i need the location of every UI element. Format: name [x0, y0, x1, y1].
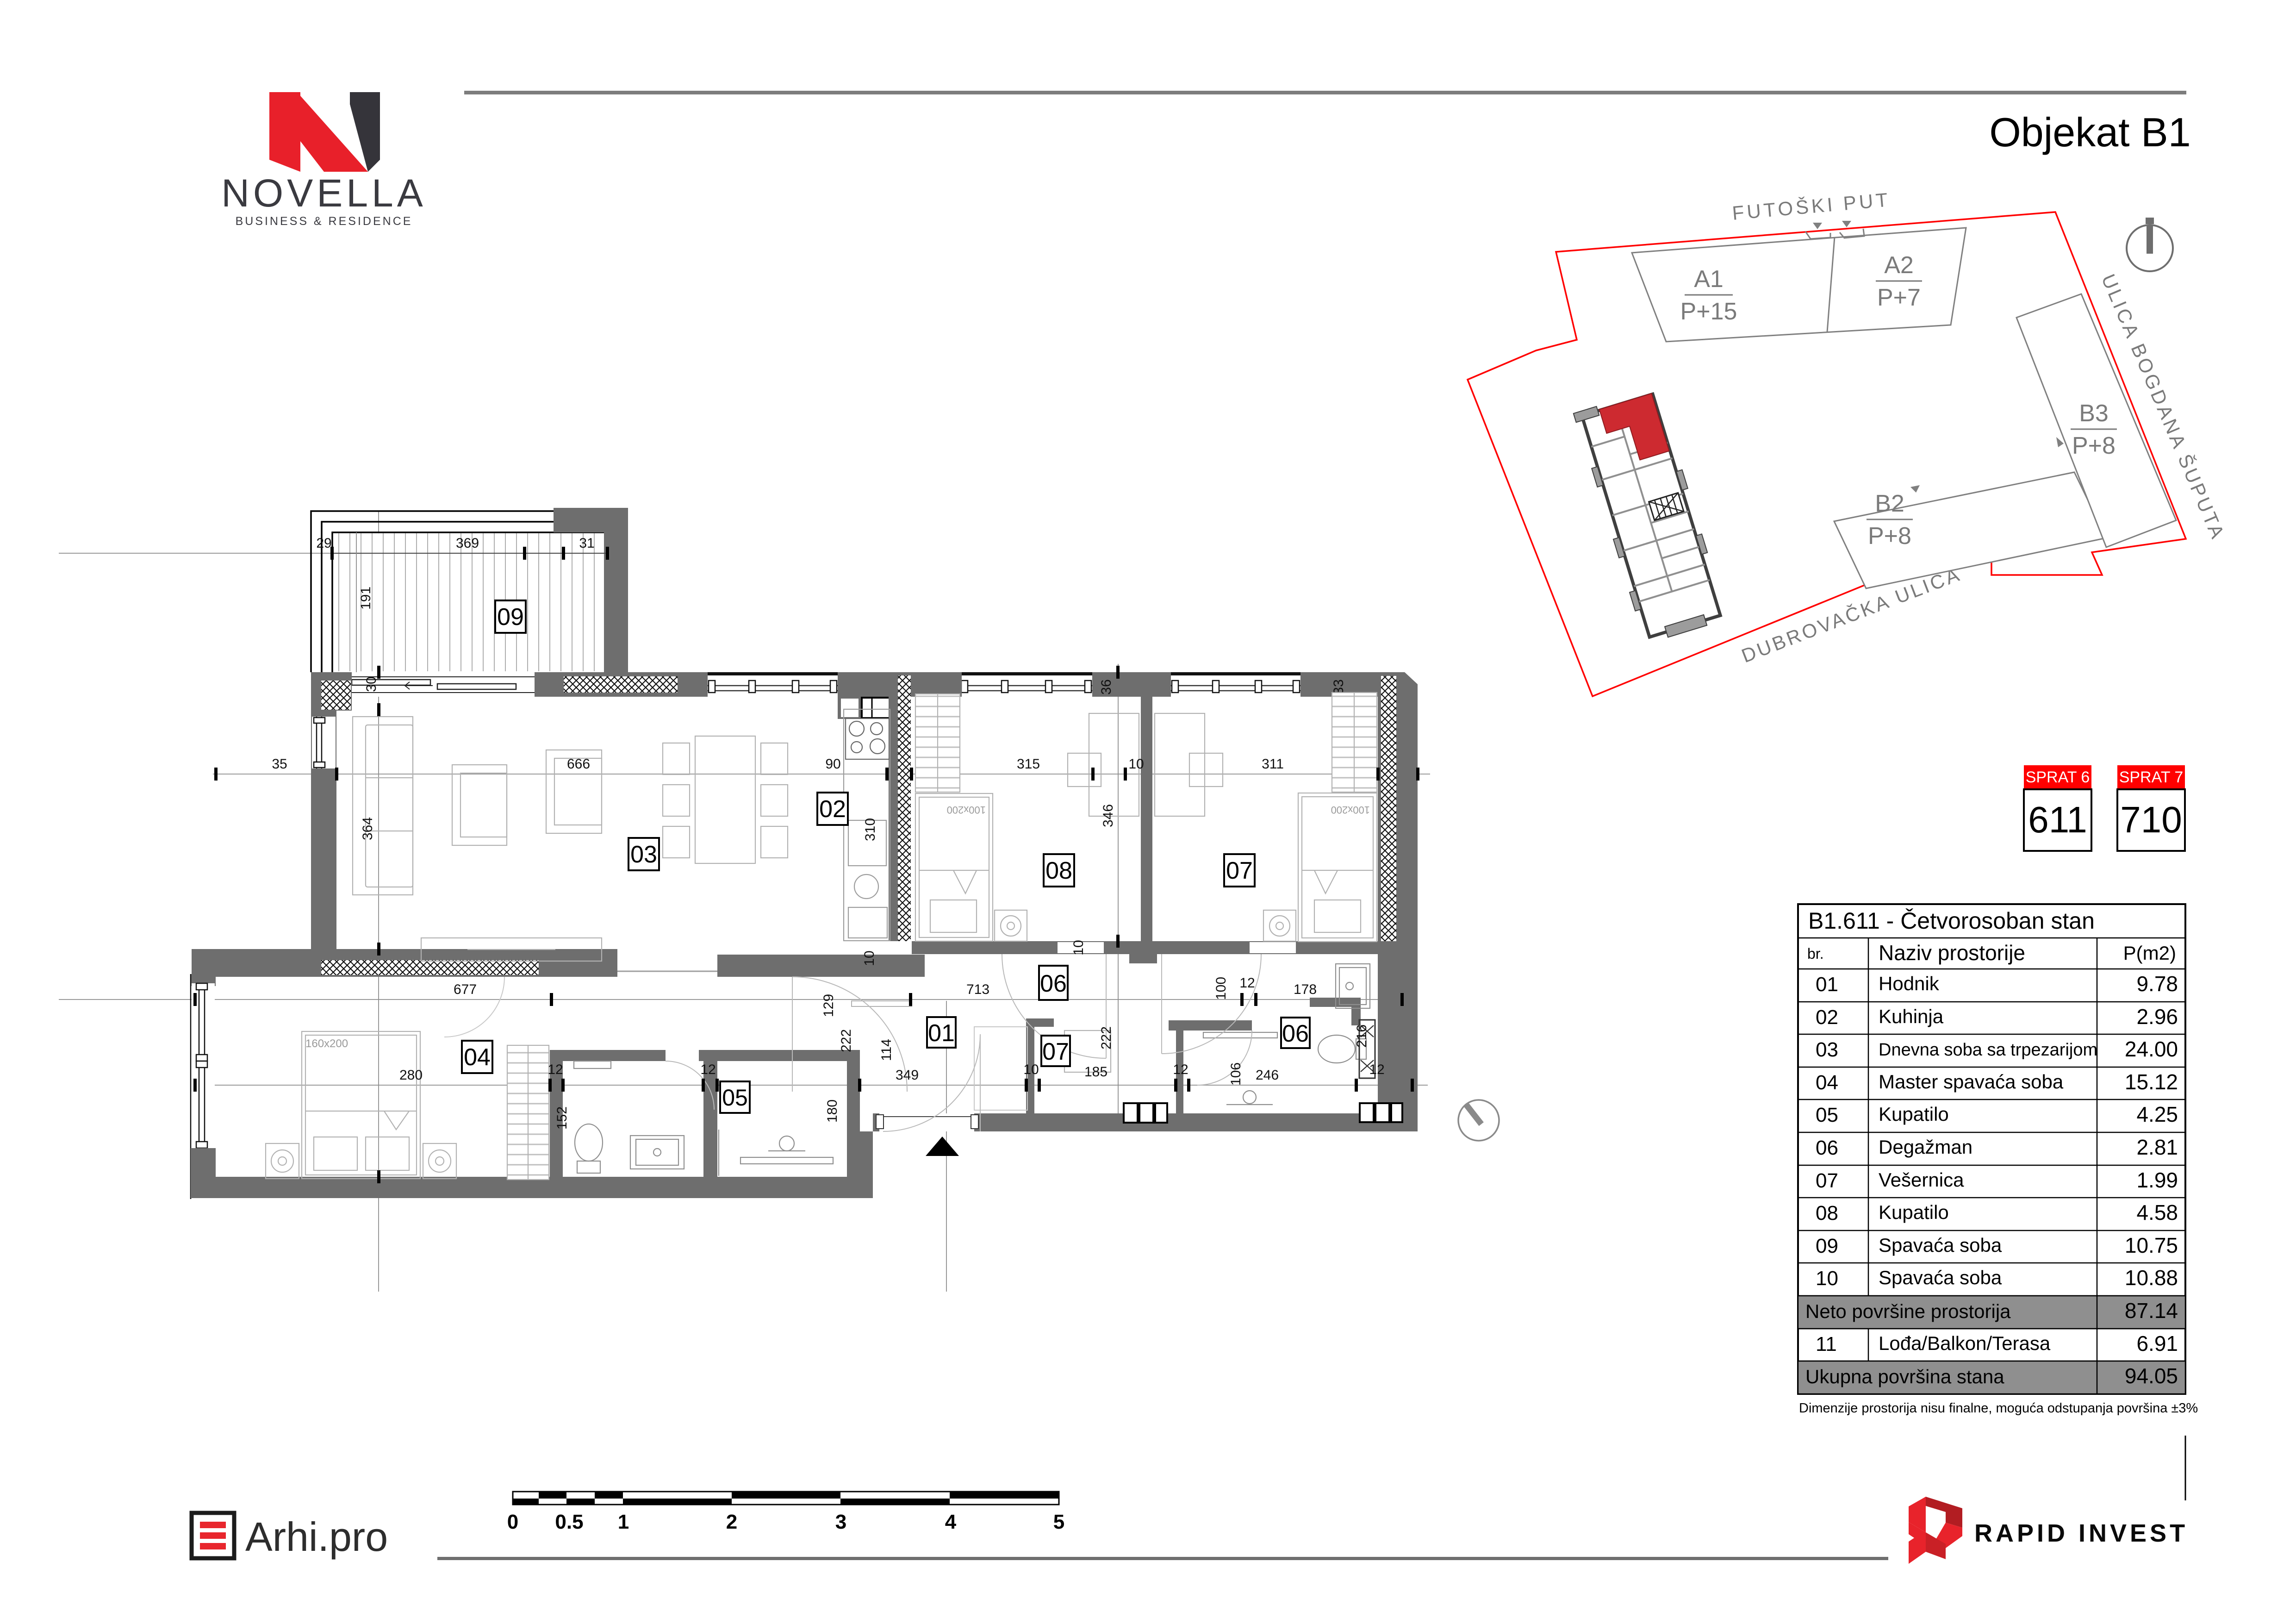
- svg-text:35: 35: [272, 756, 287, 772]
- svg-text:B2: B2: [1875, 490, 1904, 517]
- svg-text:180: 180: [825, 1099, 840, 1123]
- svg-text:677: 677: [454, 982, 477, 997]
- svg-text:185: 185: [1084, 1064, 1108, 1080]
- svg-text:12: 12: [700, 1062, 716, 1077]
- svg-text:191: 191: [358, 587, 373, 610]
- svg-text:310: 310: [863, 818, 878, 841]
- svg-text:Kuhinja: Kuhinja: [1879, 1006, 1944, 1027]
- svg-text:713: 713: [966, 982, 989, 997]
- svg-text:1: 1: [618, 1511, 629, 1533]
- svg-text:129: 129: [821, 994, 836, 1017]
- svg-text:09: 09: [497, 604, 524, 631]
- svg-text:6.91: 6.91: [2136, 1331, 2178, 1355]
- svg-text:100x200: 100x200: [1331, 804, 1370, 816]
- svg-text:NOVELLA: NOVELLA: [221, 171, 427, 215]
- svg-text:02: 02: [1816, 1006, 1838, 1029]
- svg-text:Spavaća soba: Spavaća soba: [1879, 1267, 2002, 1288]
- svg-text:Hodnik: Hodnik: [1879, 973, 1940, 994]
- svg-text:Dnevna soba sa trpezarijom: Dnevna soba sa trpezarijom: [1879, 1040, 2097, 1060]
- svg-text:P+15: P+15: [1680, 298, 1737, 325]
- svg-text:10: 10: [1816, 1267, 1838, 1290]
- svg-text:29: 29: [316, 536, 331, 551]
- svg-text:710: 710: [2120, 799, 2182, 840]
- svg-text:02: 02: [819, 796, 846, 823]
- svg-text:1.99: 1.99: [2136, 1168, 2178, 1192]
- svg-text:Vešernica: Vešernica: [1879, 1169, 1964, 1191]
- svg-text:2.96: 2.96: [2136, 1005, 2178, 1029]
- svg-text:2.81: 2.81: [2136, 1135, 2178, 1159]
- svg-text:10.88: 10.88: [2125, 1266, 2178, 1290]
- svg-text:05: 05: [1816, 1104, 1838, 1126]
- svg-text:216: 216: [1354, 1024, 1369, 1048]
- svg-text:01: 01: [928, 1020, 955, 1047]
- svg-text:01: 01: [1816, 973, 1838, 996]
- svg-text:12: 12: [548, 1062, 563, 1077]
- svg-text:315: 315: [1017, 756, 1040, 772]
- svg-text:364: 364: [360, 817, 375, 840]
- svg-text:10: 10: [1023, 1062, 1039, 1077]
- svg-text:Dimenzije prostorija nisu fina: Dimenzije prostorija nisu finalne, moguć…: [1799, 1401, 2198, 1416]
- svg-text:12: 12: [1239, 975, 1255, 991]
- svg-text:A1: A1: [1694, 266, 1724, 293]
- svg-text:222: 222: [1099, 1026, 1114, 1049]
- svg-text:Ukupna površina stana: Ukupna površina stana: [1805, 1366, 2004, 1387]
- svg-text:222: 222: [839, 1029, 854, 1052]
- svg-text:100: 100: [1213, 977, 1229, 1000]
- svg-text:Kupatilo: Kupatilo: [1879, 1103, 1949, 1125]
- svg-text:B1.611 - Četvorosoban stan: B1.611 - Četvorosoban stan: [1808, 908, 2095, 934]
- svg-text:178: 178: [1294, 982, 1317, 997]
- svg-text:0: 0: [507, 1511, 518, 1533]
- svg-text:100x200: 100x200: [947, 804, 986, 816]
- svg-text:P(m2): P(m2): [2123, 942, 2176, 964]
- svg-text:611: 611: [2028, 799, 2087, 840]
- svg-text:12: 12: [1173, 1062, 1188, 1077]
- svg-text:90: 90: [825, 756, 840, 772]
- svg-text:10: 10: [862, 950, 877, 966]
- svg-text:280: 280: [399, 1068, 423, 1083]
- svg-text:4: 4: [945, 1511, 957, 1533]
- svg-text:06: 06: [1282, 1020, 1309, 1047]
- svg-text:10.75: 10.75: [2125, 1233, 2178, 1257]
- svg-text:349: 349: [896, 1068, 919, 1083]
- svg-text:B3: B3: [2079, 400, 2109, 427]
- svg-text:07: 07: [1042, 1038, 1069, 1065]
- svg-text:87.14: 87.14: [2125, 1299, 2178, 1323]
- svg-text:666: 666: [567, 756, 590, 772]
- svg-text:3: 3: [835, 1511, 846, 1533]
- svg-text:09: 09: [1816, 1235, 1838, 1257]
- svg-text:152: 152: [554, 1106, 570, 1130]
- svg-text:P+8: P+8: [1868, 523, 1911, 550]
- svg-text:24.00: 24.00: [2125, 1037, 2178, 1061]
- svg-text:Kupatilo: Kupatilo: [1879, 1201, 1949, 1223]
- svg-text:Arhi.pro: Arhi.pro: [245, 1514, 388, 1560]
- svg-text:311: 311: [1262, 756, 1284, 772]
- svg-text:04: 04: [464, 1044, 491, 1071]
- svg-text:04: 04: [1816, 1071, 1838, 1094]
- svg-text:SPRAT 6: SPRAT 6: [2026, 768, 2090, 786]
- svg-text:114: 114: [879, 1039, 894, 1061]
- svg-text:06: 06: [1040, 970, 1067, 997]
- svg-text:36: 36: [1099, 679, 1114, 694]
- svg-text:Neto površine prostorija: Neto površine prostorija: [1805, 1300, 2011, 1322]
- svg-text:246: 246: [1256, 1068, 1279, 1083]
- svg-text:08: 08: [1045, 857, 1072, 884]
- svg-text:30: 30: [364, 676, 379, 692]
- svg-text:br.: br.: [1807, 945, 1824, 962]
- svg-text:RAPID INVEST: RAPID INVEST: [1974, 1519, 2188, 1547]
- svg-text:07: 07: [1816, 1169, 1838, 1192]
- svg-text:31: 31: [579, 536, 594, 551]
- svg-text:2: 2: [726, 1511, 737, 1533]
- svg-text:03: 03: [1816, 1038, 1838, 1061]
- svg-text:03: 03: [630, 841, 657, 868]
- svg-text:15.12: 15.12: [2125, 1070, 2178, 1094]
- svg-text:08: 08: [1816, 1202, 1838, 1224]
- svg-text:A2: A2: [1884, 252, 1914, 279]
- svg-text:SPRAT 7: SPRAT 7: [2119, 768, 2184, 786]
- svg-text:Spavaća soba: Spavaća soba: [1879, 1234, 2002, 1256]
- svg-text:Lođa/Balkon/Terasa: Lođa/Balkon/Terasa: [1879, 1332, 2051, 1354]
- svg-text:10: 10: [1128, 756, 1144, 772]
- svg-text:11: 11: [1816, 1333, 1837, 1355]
- svg-text:4.58: 4.58: [2136, 1200, 2178, 1224]
- svg-text:Objekat B1: Objekat B1: [1989, 109, 2190, 155]
- svg-text:Degažman: Degažman: [1879, 1136, 1972, 1158]
- svg-text:0.5: 0.5: [555, 1511, 583, 1533]
- svg-text:06: 06: [1816, 1137, 1838, 1159]
- svg-text:4.25: 4.25: [2136, 1102, 2178, 1126]
- svg-text:07: 07: [1226, 857, 1253, 884]
- svg-text:Naziv prostorije: Naziv prostorije: [1879, 941, 2025, 965]
- svg-text:05: 05: [722, 1085, 748, 1111]
- svg-text:10: 10: [1071, 940, 1086, 955]
- svg-text:BUSINESS & RESIDENCE: BUSINESS & RESIDENCE: [236, 215, 413, 228]
- svg-text:9.78: 9.78: [2136, 972, 2178, 996]
- svg-text:160x200: 160x200: [305, 1037, 348, 1050]
- svg-text:94.05: 94.05: [2125, 1364, 2178, 1388]
- svg-text:346: 346: [1101, 804, 1116, 827]
- svg-text:P+7: P+7: [1877, 284, 1921, 311]
- svg-text:5: 5: [1053, 1511, 1064, 1533]
- svg-text:P+8: P+8: [2072, 432, 2116, 459]
- svg-text:Master spavaća soba: Master spavaća soba: [1879, 1071, 2064, 1093]
- svg-text:12: 12: [1369, 1062, 1384, 1077]
- svg-text:106: 106: [1228, 1062, 1244, 1086]
- svg-text:369: 369: [456, 536, 479, 551]
